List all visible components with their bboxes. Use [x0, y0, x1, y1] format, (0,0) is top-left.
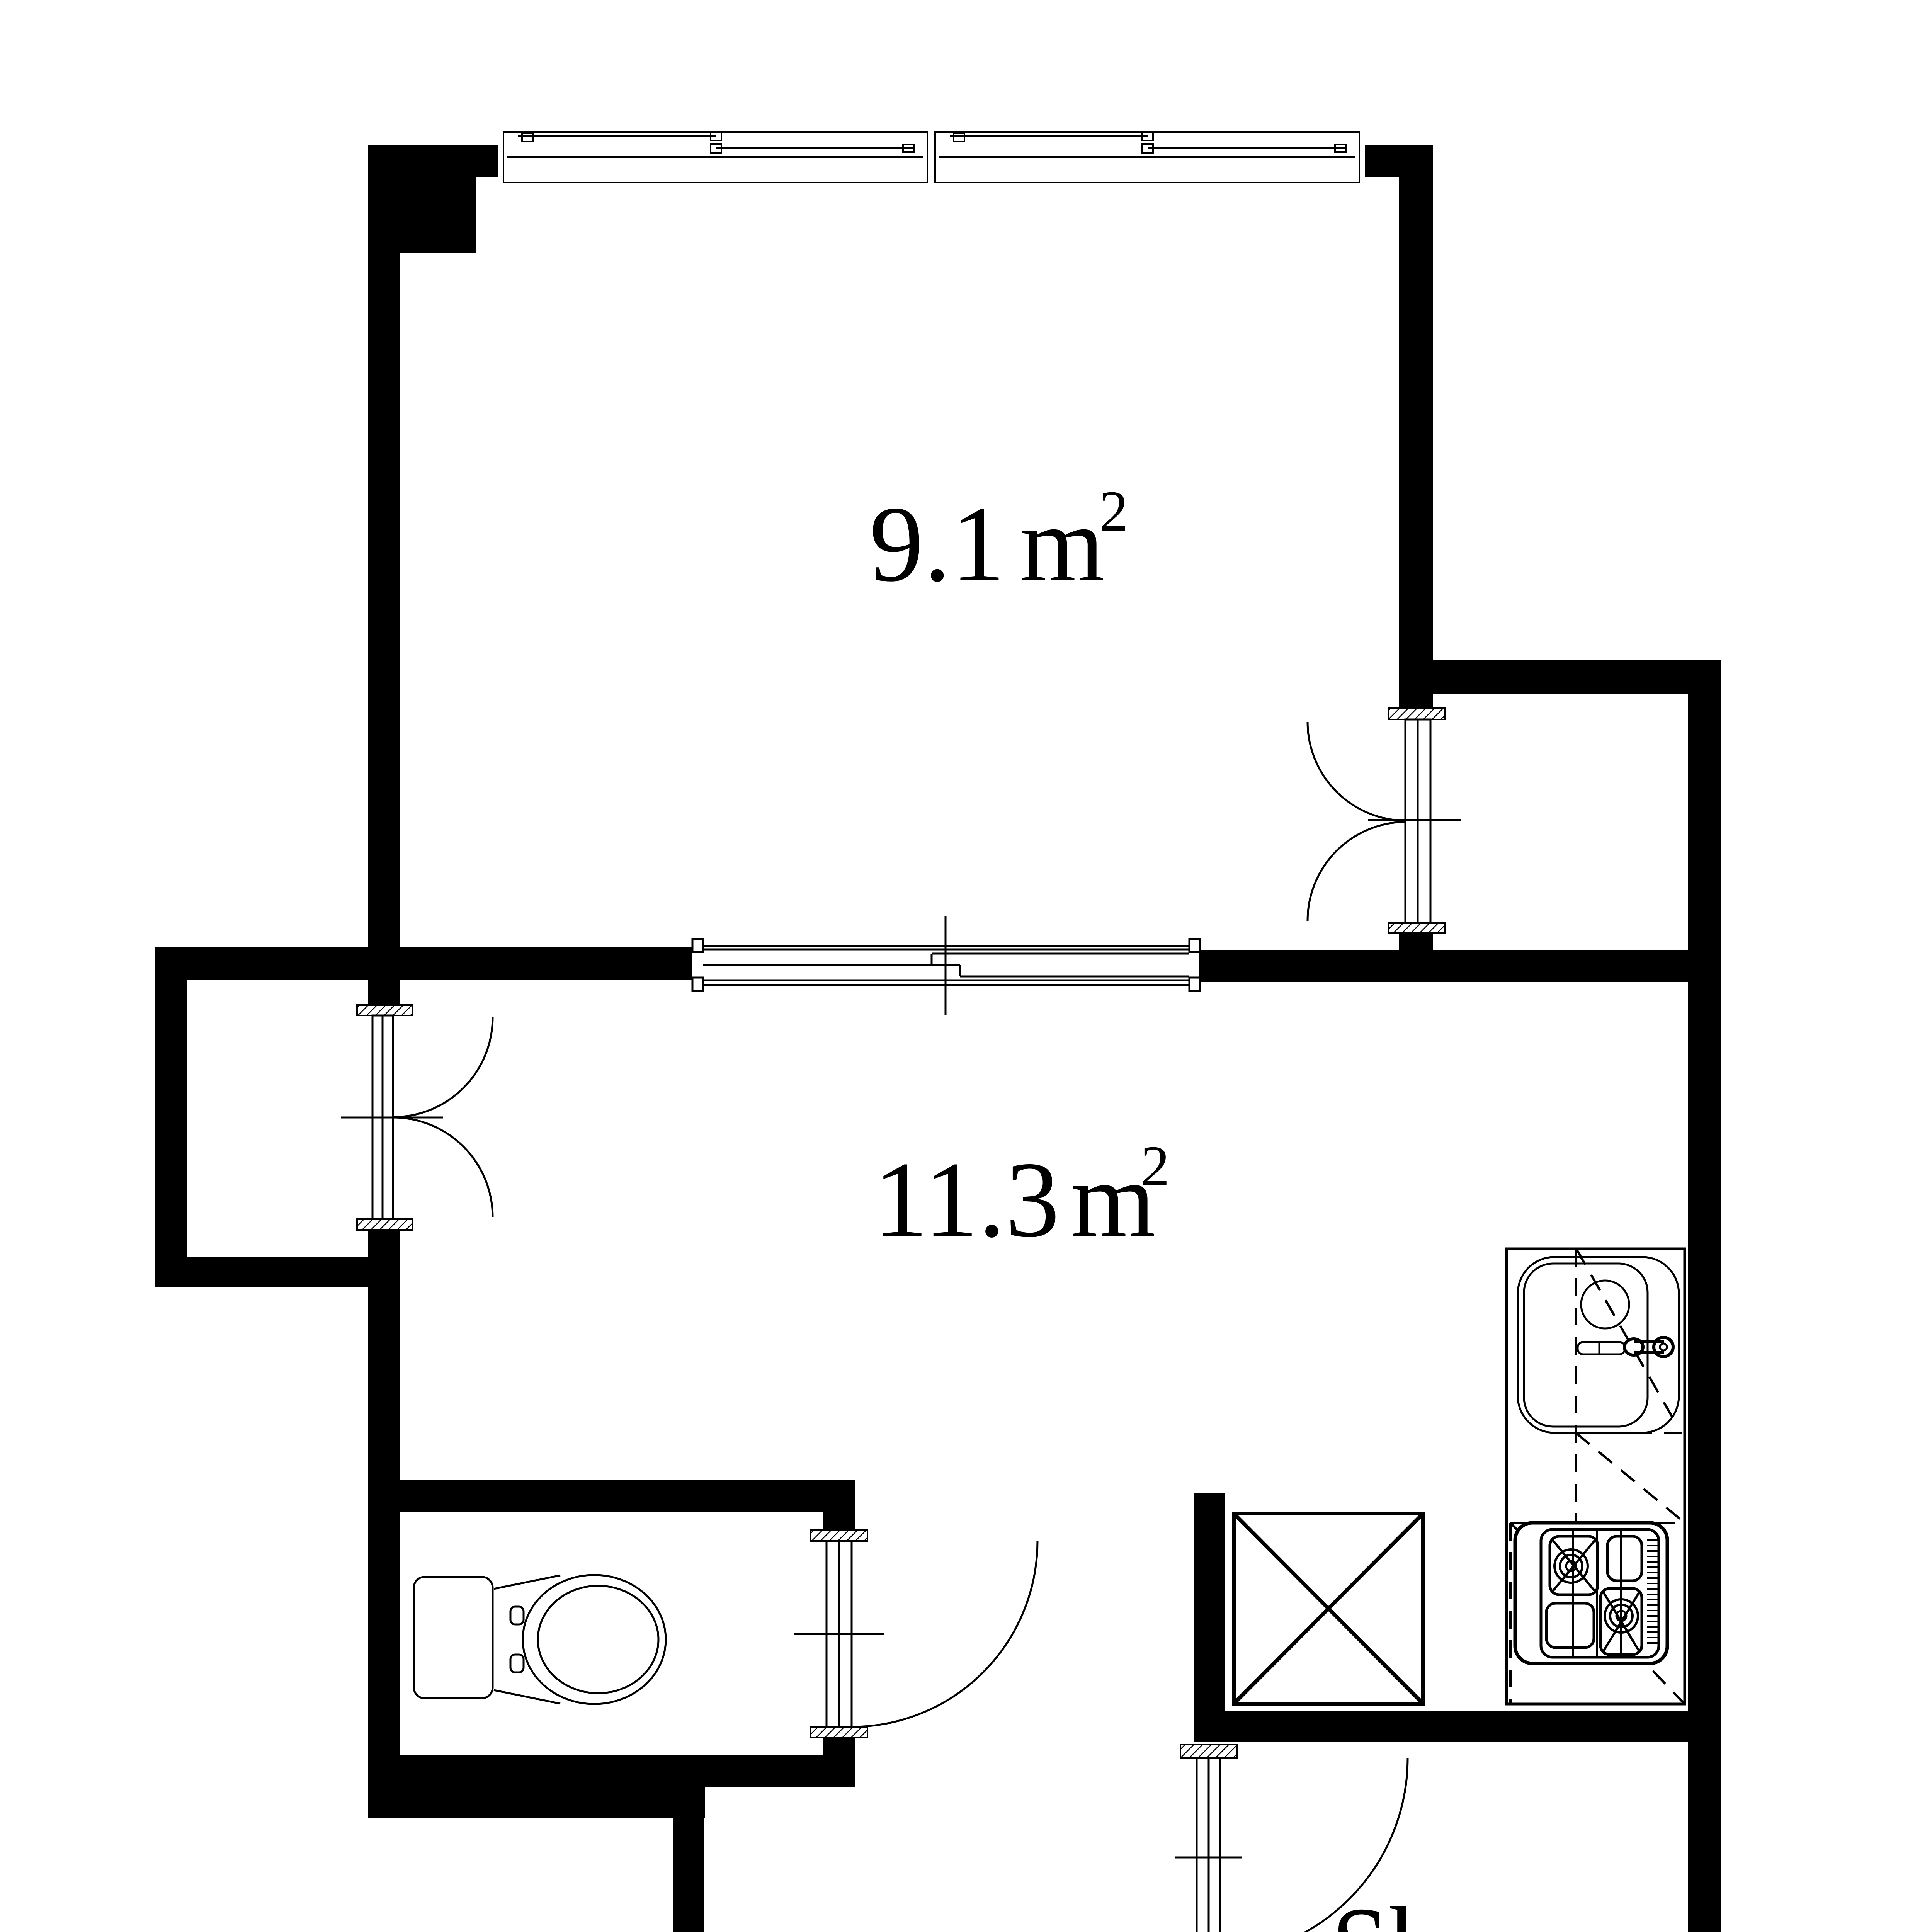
- svg-text:2: 2: [1099, 479, 1128, 543]
- svg-text:11.3: 11.3: [874, 1139, 1060, 1260]
- svg-text:Shower: Shower: [1332, 1883, 1648, 1932]
- svg-text:m: m: [1020, 484, 1105, 604]
- svg-text:2: 2: [1141, 1134, 1170, 1198]
- svg-text:9.1: 9.1: [869, 484, 1005, 604]
